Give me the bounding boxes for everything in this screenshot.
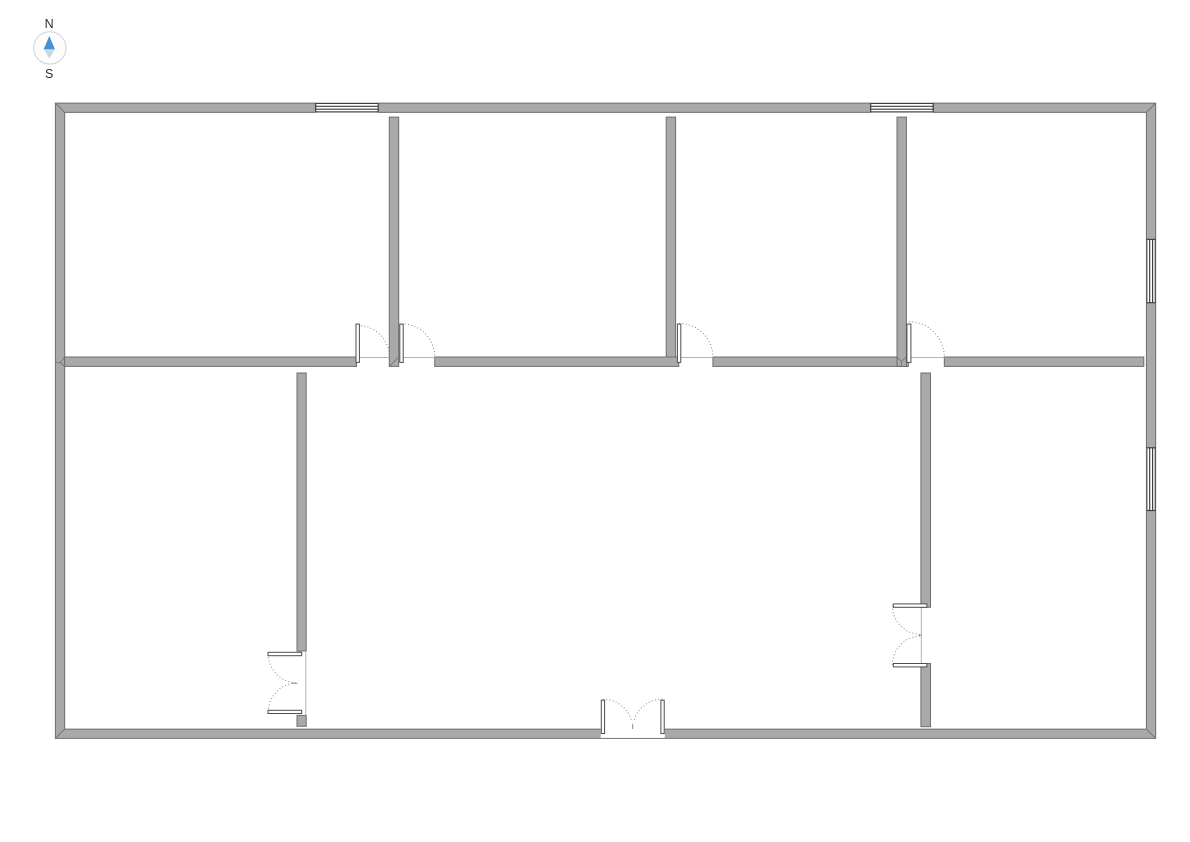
svg-text:S: S [45,67,53,81]
svg-text:N: N [45,17,54,31]
